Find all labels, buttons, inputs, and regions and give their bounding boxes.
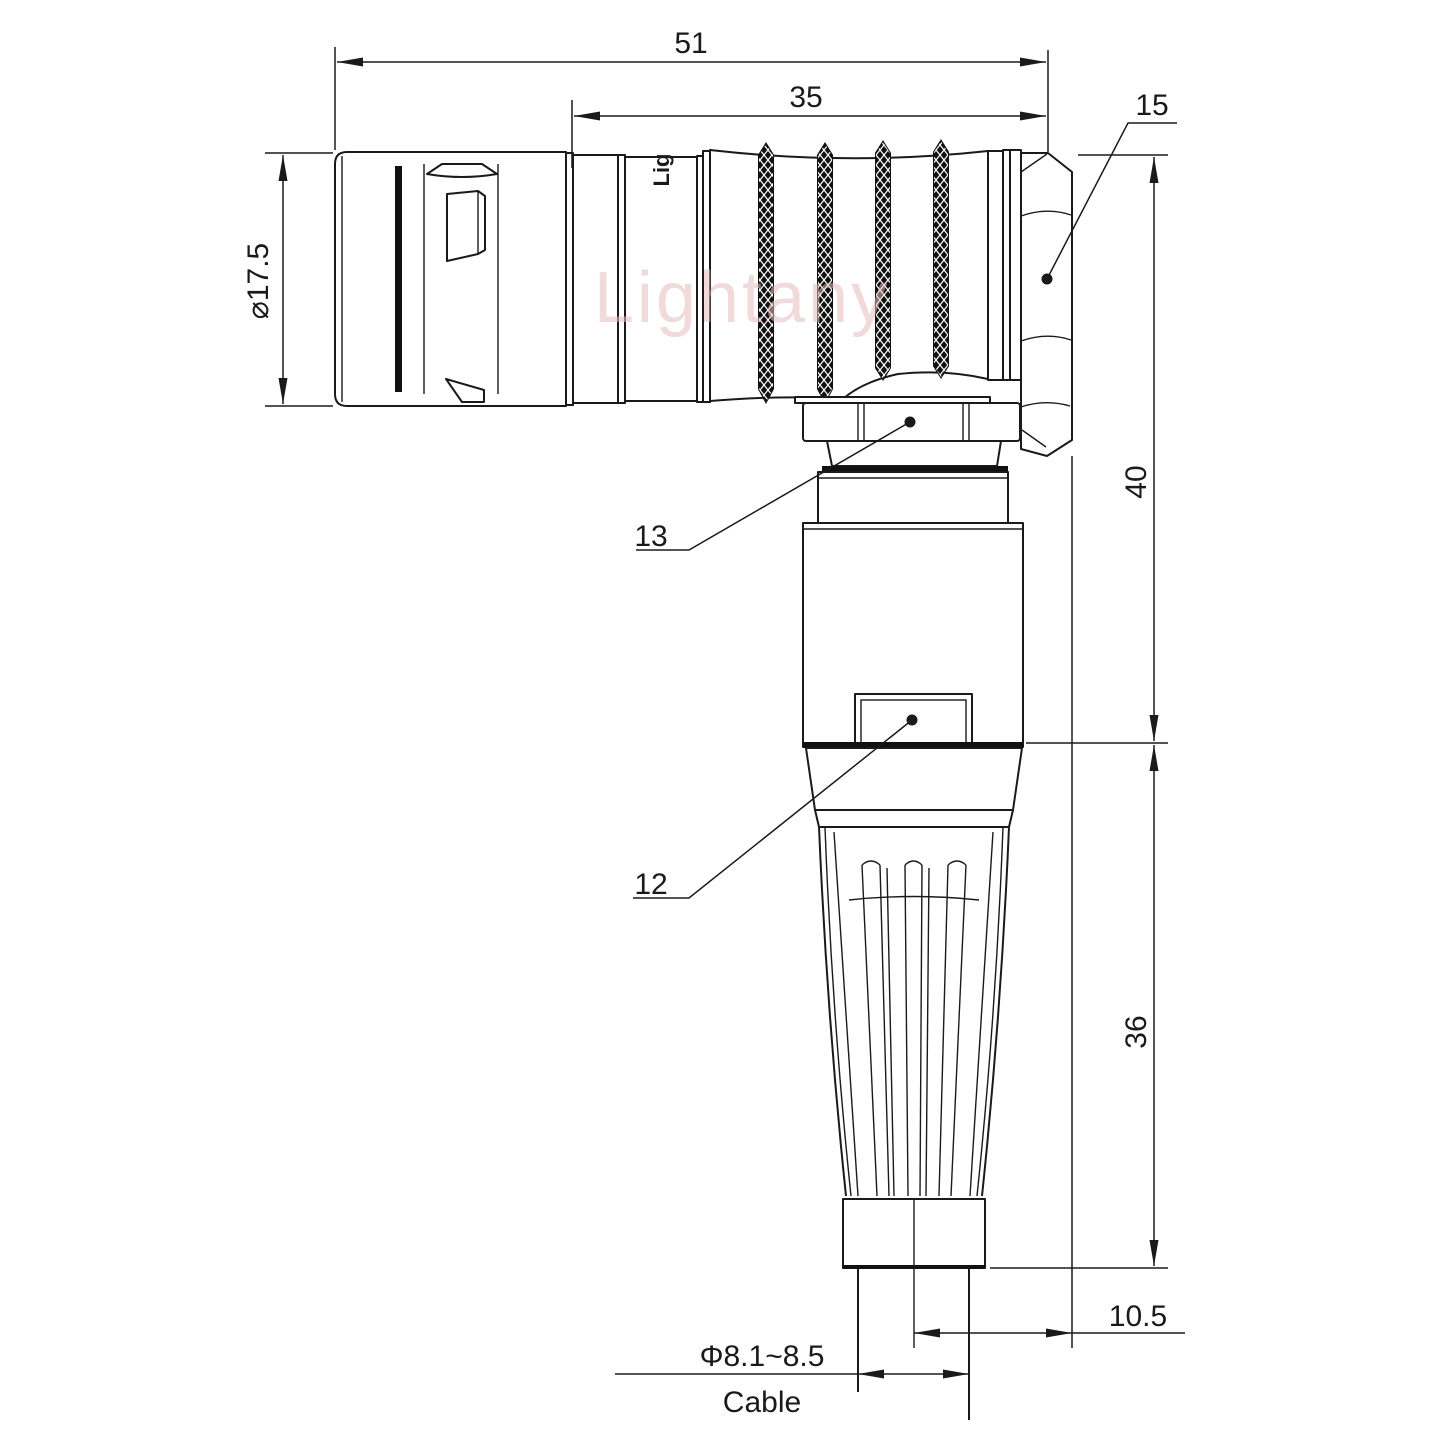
lower-collar [818, 472, 1008, 523]
dim-value: 35 [789, 81, 822, 114]
arrow-left-icon [914, 1329, 940, 1338]
rib-notch-3 [948, 861, 966, 865]
rib4-flute [970, 832, 993, 1196]
arrow-down-icon [279, 378, 288, 404]
dim-overall-length: 51 [335, 27, 1048, 152]
arrow-up-icon [279, 155, 288, 181]
arrow-right-icon [1020, 112, 1046, 121]
dim-value: 51 [674, 27, 707, 60]
end-ring-2 [1003, 150, 1010, 380]
dim-plug-diameter: ⌀17.5 [242, 153, 333, 406]
body-brand-mark: Lig [649, 154, 674, 187]
arrow-left-icon [574, 112, 600, 121]
knurl-band-4-icon [934, 140, 949, 378]
arrow-left-icon [858, 1370, 884, 1379]
arrow-up-icon [1150, 157, 1159, 183]
upper-collar [827, 441, 1001, 466]
plug-rear-shell [335, 152, 566, 406]
hex-nut [1021, 153, 1072, 456]
step-ring [566, 153, 573, 405]
item-number: 12 [634, 868, 667, 901]
dim-value: 36 [1120, 1015, 1153, 1048]
hex-nut-outline [1021, 153, 1072, 456]
rib-gap3-left [939, 865, 948, 1196]
arrow-down-icon [1150, 715, 1159, 741]
arrow-down-icon [1150, 1240, 1159, 1266]
rib-gap3-right [951, 865, 966, 1196]
rib3-flute [926, 868, 929, 1196]
arrow-right-icon [943, 1370, 969, 1379]
dim-value: 40 [1120, 465, 1153, 498]
boot-right-outer-edge [982, 827, 1009, 1196]
dim-value: Φ8.1~8.5 [700, 1340, 825, 1373]
boot-mid-seam [849, 897, 979, 901]
arrow-right-icon [1020, 58, 1046, 67]
technical-drawing-page: Lig [0, 0, 1440, 1440]
rear-shell-outline [335, 152, 566, 406]
dim-boot-height: 36 [990, 745, 1168, 1268]
end-ring-3 [1010, 150, 1021, 380]
rib-gap2-left [905, 865, 908, 1196]
rib-gap2-right [920, 865, 922, 1196]
rib-gap1-left [862, 865, 877, 1196]
housing-cylinder [803, 523, 1023, 748]
item-number: 15 [1135, 89, 1168, 122]
arrow-up-icon [1150, 745, 1159, 771]
strain-relief-boot [806, 748, 1022, 1269]
boot-collar-ring [815, 810, 1013, 827]
elbow-assembly [795, 397, 1020, 523]
dim-value: ⌀17.5 [242, 243, 275, 319]
arrow-left-icon [337, 58, 363, 67]
dim-cable-diameter: Φ8.1~8.5 Cable [615, 1340, 969, 1419]
rib-notch-1 [862, 861, 880, 865]
watermark: Lightany [594, 258, 890, 338]
shell-dark-band [395, 166, 402, 392]
connector-drawing-svg: Lig [0, 0, 1440, 1440]
cable-label: Cable [723, 1386, 801, 1419]
item-number: 13 [634, 520, 667, 553]
dim-value: 10.5 [1109, 1300, 1167, 1333]
cylinder-outline [803, 523, 1023, 747]
rib-notch-2 [905, 861, 922, 865]
arrow-right-icon [1046, 1329, 1072, 1338]
boot-left-outer-edge [819, 827, 846, 1196]
end-ring-1 [988, 151, 1003, 380]
